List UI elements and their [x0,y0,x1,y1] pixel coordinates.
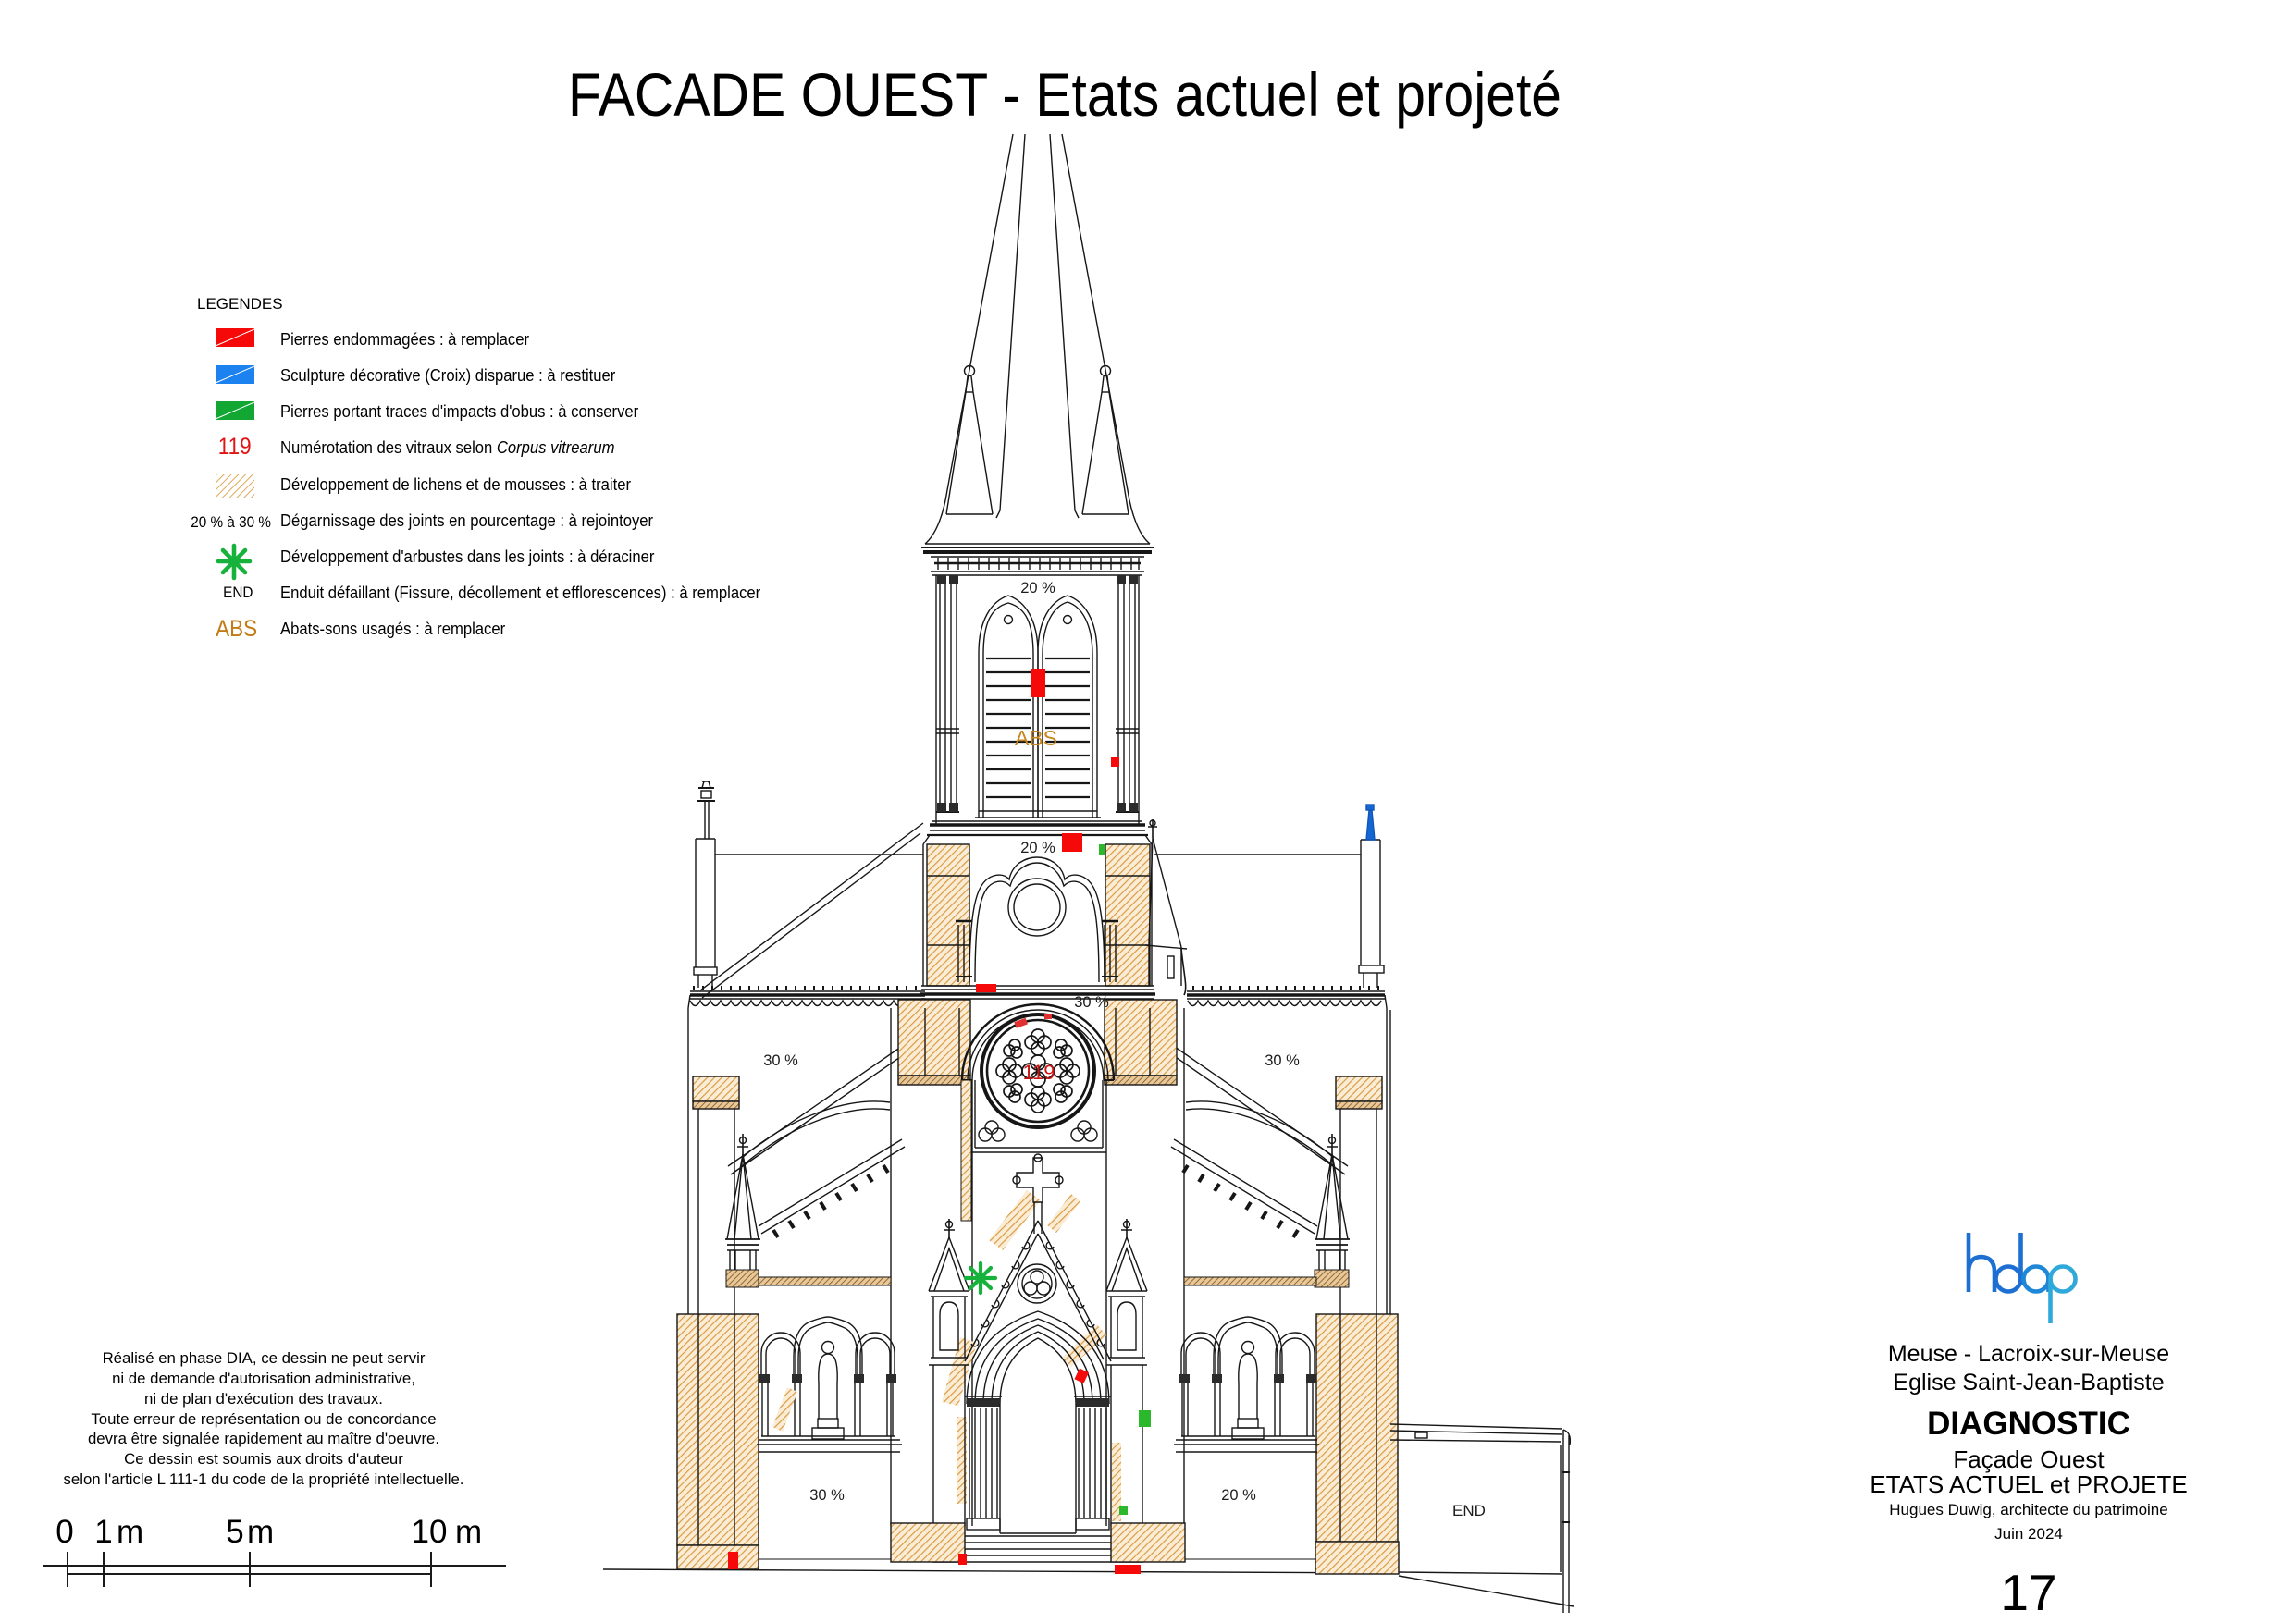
svg-text:ETATS ACTUEL et PROJETE: ETATS ACTUEL et PROJETE [1870,1470,2187,1498]
svg-text:20 %: 20 % [1020,840,1055,856]
svg-text:20 %: 20 % [1221,1487,1256,1504]
svg-text:Dégarnissage des joints en pou: Dégarnissage des joints en pourcentage :… [280,510,653,530]
svg-text:Juin 2024: Juin 2024 [1994,1525,2063,1543]
svg-text:17: 17 [2000,1564,2056,1621]
svg-text:Développement de lichens et de: Développement de lichens et de mousses :… [280,474,631,494]
svg-text:devra être signalée rapidement: devra être signalée rapidement au maître… [88,1430,439,1447]
svg-text:Enduit défaillant (Fissure, dé: Enduit défaillant (Fissure, décollement … [280,583,760,602]
svg-text:Abats-sons usagés : à remplace: Abats-sons usagés : à remplacer [280,619,505,638]
svg-text:ABS: ABS [1015,726,1057,750]
svg-text:m: m [247,1514,274,1550]
svg-text:Façade Ouest: Façade Ouest [1953,1445,2105,1473]
svg-text:Ce dessin est soumis aux droit: Ce dessin est soumis aux droits d'auteur [124,1450,403,1468]
svg-text:ni de plan d'exécution des tra: ni de plan d'exécution des travaux. [144,1390,383,1408]
svg-text:Hugues Duwig, architecte du pa: Hugues Duwig, architecte du patrimoine [1889,1501,2167,1518]
svg-text:Sculpture décorative (Croix) d: Sculpture décorative (Croix) disparue : … [280,365,615,385]
svg-text:10: 10 [412,1514,448,1550]
svg-text:Pierres endommagées : à rempla: Pierres endommagées : à remplacer [280,329,529,349]
svg-text:selon l'article L 111-1 du cod: selon l'article L 111-1 du code de la pr… [64,1470,464,1488]
svg-text:Réalisé en phase DIA, ce dessi: Réalisé en phase DIA, ce dessin ne peut … [103,1349,426,1367]
svg-text:FACADE OUEST - Etats actuel et: FACADE OUEST - Etats actuel et projeté [568,60,1562,129]
svg-text:30 %: 30 % [763,1052,798,1069]
svg-text:30 %: 30 % [809,1487,845,1504]
svg-text:0: 0 [56,1514,73,1550]
svg-text:END: END [1452,1502,1486,1519]
svg-text:ni de demande d'autorisation a: ni de demande d'autorisation administrat… [112,1370,415,1387]
svg-text:END: END [223,584,253,601]
svg-text:30 %: 30 % [1265,1052,1300,1069]
svg-text:Eglise Saint-Jean-Baptiste: Eglise Saint-Jean-Baptiste [1893,1370,2164,1396]
svg-text:Développement d'arbustes dans: Développement d'arbustes dans les joints… [280,547,655,566]
svg-text:119: 119 [218,434,252,460]
svg-text:Meuse - Lacroix-sur-Meuse: Meuse - Lacroix-sur-Meuse [1888,1341,2169,1367]
svg-text:Numérotation des vitraux selon: Numérotation des vitraux selon Corpus vi… [280,437,614,457]
svg-text:20 %: 20 % [1020,580,1055,596]
svg-text:1: 1 [94,1514,112,1550]
svg-text:LEGENDES: LEGENDES [197,295,283,313]
svg-text:ABS: ABS [216,616,257,642]
svg-text:Pierres portant traces d'impac: Pierres portant traces d'impacts d'obus … [280,401,638,421]
svg-text:5: 5 [226,1514,243,1550]
svg-text:30 %: 30 % [1074,994,1109,1011]
svg-text:DIAGNOSTIC: DIAGNOSTIC [1927,1406,2130,1442]
svg-text:m: m [455,1514,482,1550]
svg-text:m: m [117,1514,143,1550]
svg-text:Toute erreur de représentation: Toute erreur de représentation ou de con… [91,1410,436,1428]
svg-text:119: 119 [1022,1061,1055,1084]
svg-text:20 % à 30 %: 20 % à 30 % [191,513,271,531]
